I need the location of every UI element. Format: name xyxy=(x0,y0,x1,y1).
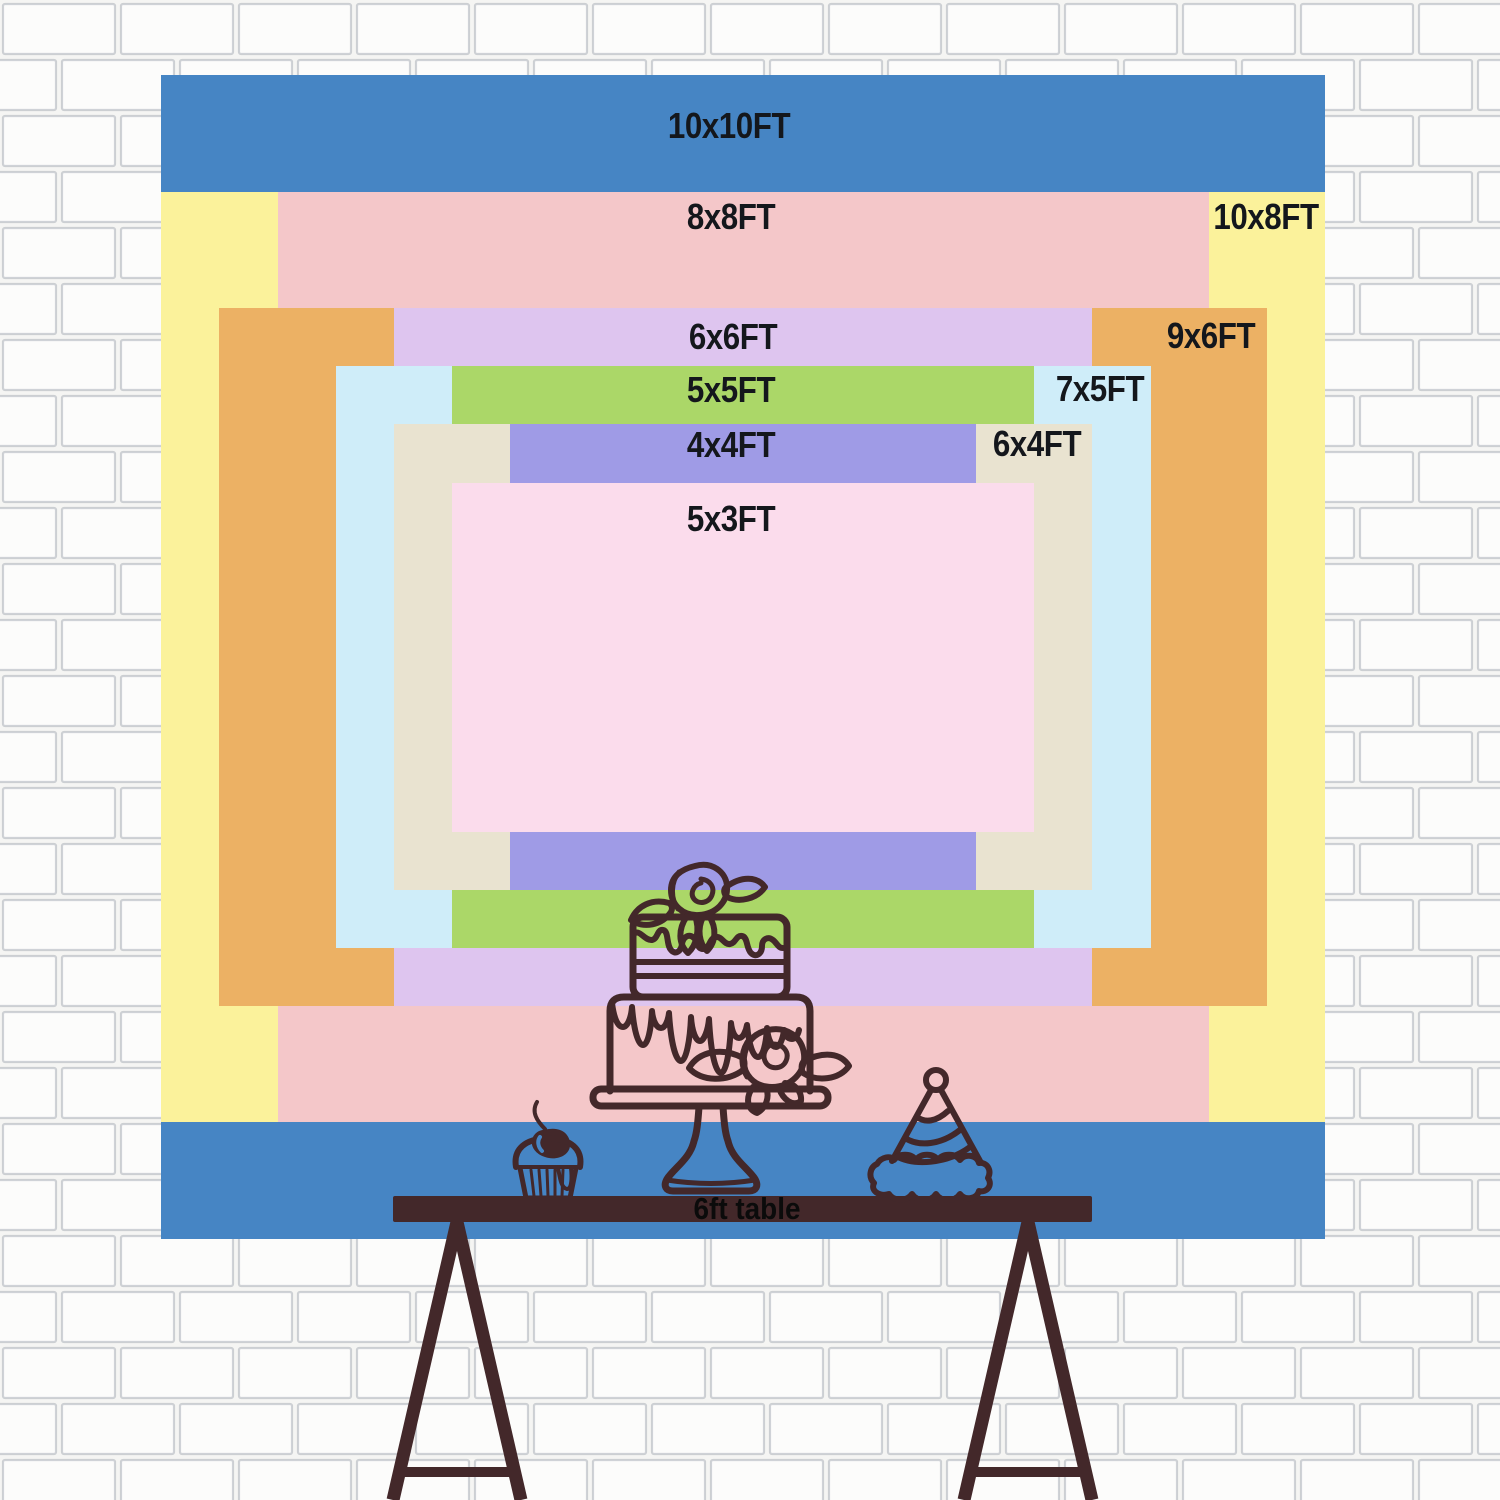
table-legs xyxy=(393,1222,1092,1500)
hat-stripe-2 xyxy=(905,1130,960,1143)
line-art xyxy=(393,865,1092,1500)
cake-stand-foot-rim xyxy=(667,1180,755,1184)
backdrop-size-chart: 10x10FT 8x8FT 10x8FT 6x6FT 9x6FT 5x5FT 7… xyxy=(0,0,1500,1500)
cake-stand-pedestal xyxy=(665,1107,757,1191)
dessert-table-art xyxy=(0,0,1500,1500)
top-leaf-right xyxy=(724,879,765,900)
bottom-tier-icing-drip xyxy=(612,1003,799,1073)
party-hat-icon xyxy=(870,1070,989,1200)
top-leaf-left xyxy=(631,902,672,925)
cherry-stem xyxy=(535,1102,545,1129)
bottom-rose xyxy=(744,1029,804,1087)
table-size-label: 6ft table xyxy=(694,1191,801,1227)
cake-icon xyxy=(593,865,849,1191)
trestle-table-icon xyxy=(393,1222,1092,1500)
top-tier-bands xyxy=(636,962,784,976)
cake-top-tier xyxy=(633,917,787,997)
hat-pompom xyxy=(926,1070,946,1090)
top-rose-spiral xyxy=(692,879,713,902)
